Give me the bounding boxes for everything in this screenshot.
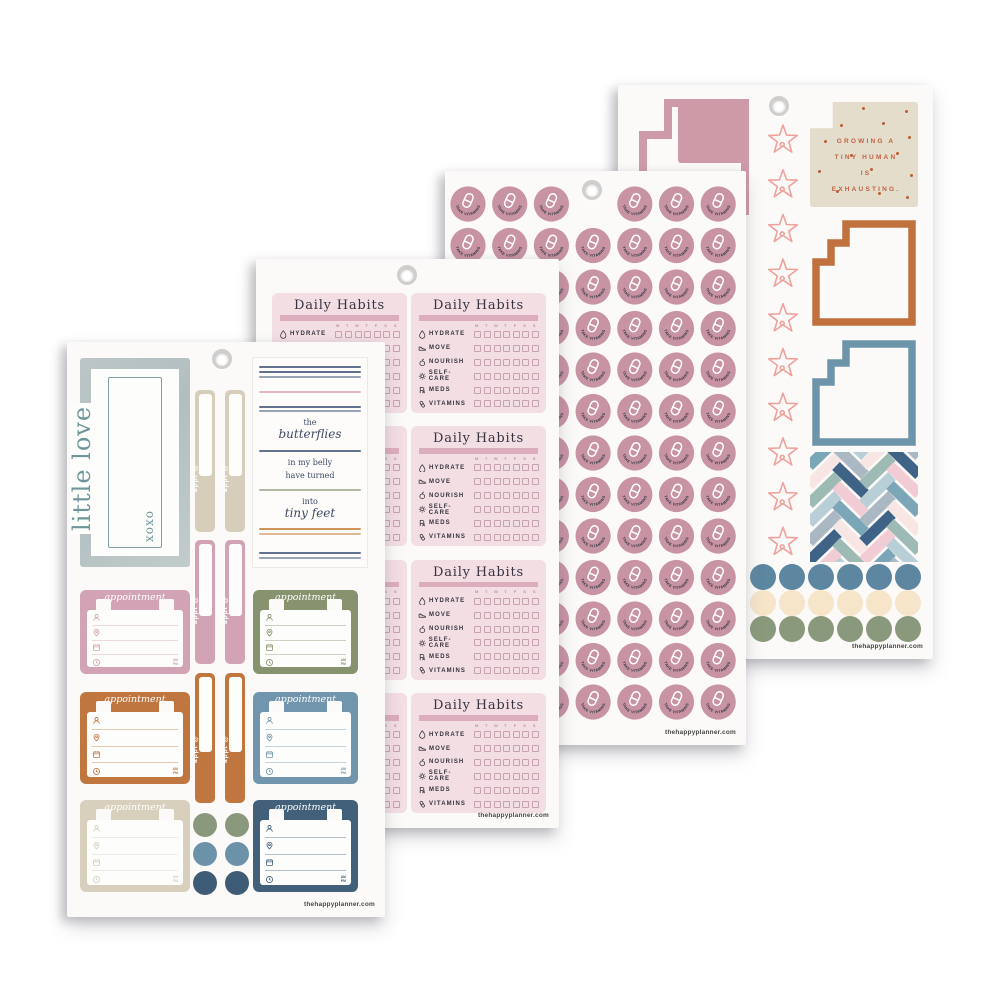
tab-label: appt @ bbox=[223, 590, 231, 624]
shoe-icon bbox=[418, 344, 429, 353]
habit-checkbox bbox=[494, 639, 501, 646]
habit-checkbox bbox=[532, 773, 539, 780]
habit-checkbox bbox=[474, 801, 481, 808]
clock-icon bbox=[265, 875, 274, 884]
habit-checkbox bbox=[474, 464, 481, 471]
rx-icon bbox=[418, 386, 429, 395]
appointment-row bbox=[92, 713, 178, 730]
clock-icon bbox=[265, 658, 274, 667]
habit-checkbox bbox=[494, 787, 501, 794]
habit-checkbox bbox=[532, 345, 539, 352]
habit-checkbox bbox=[522, 731, 529, 738]
sticker-sheet-little-love: little love xoxo appt @appt @appt @appt … bbox=[67, 342, 385, 917]
vitamin-circle-sticker bbox=[576, 352, 611, 387]
vitamin-circle-sticker bbox=[701, 643, 736, 678]
dot-sticker bbox=[779, 616, 805, 642]
habit-row: HYDRATE bbox=[418, 594, 539, 608]
habit-checkbox bbox=[532, 492, 539, 499]
habit-checkbox bbox=[513, 534, 520, 541]
day-letter: F bbox=[510, 323, 520, 328]
pill-icon bbox=[418, 666, 429, 675]
habit-checkbox bbox=[532, 387, 539, 394]
habit-checkbox bbox=[393, 359, 400, 366]
habit-checkbox bbox=[532, 639, 539, 646]
habit-row: NOURISH bbox=[418, 622, 539, 636]
star-sticker bbox=[769, 438, 798, 465]
vitamin-circle-sticker bbox=[659, 228, 694, 263]
vitamin-circle-sticker bbox=[659, 518, 694, 553]
habit-checkbox bbox=[494, 801, 501, 808]
appointment-row: AMPM bbox=[265, 655, 346, 670]
dot-sticker bbox=[193, 813, 217, 837]
habit-checkbox bbox=[522, 506, 529, 513]
title-underline-bar bbox=[419, 315, 538, 321]
habit-checkbox bbox=[393, 653, 400, 660]
am-pm-label: AMPM bbox=[173, 658, 178, 667]
habit-checkbox bbox=[513, 345, 520, 352]
habit-checkbox bbox=[503, 639, 510, 646]
day-letter: F bbox=[510, 589, 520, 594]
vitamin-circle-sticker bbox=[576, 560, 611, 595]
vitamin-circle-sticker bbox=[659, 601, 694, 636]
habit-checkbox bbox=[503, 400, 510, 407]
habit-checkbox bbox=[484, 506, 491, 513]
day-letter: S bbox=[390, 323, 400, 328]
sun-icon bbox=[418, 505, 429, 514]
appointment-row: AMPM bbox=[92, 763, 178, 780]
tab-label: appt @ bbox=[193, 729, 201, 763]
habit-checkbox bbox=[532, 478, 539, 485]
vitamin-circle-sticker bbox=[701, 186, 736, 221]
habit-checkbox bbox=[393, 773, 400, 780]
dot-sticker bbox=[895, 590, 921, 616]
habit-row: VITAMINS bbox=[418, 530, 539, 544]
habit-checkbox bbox=[522, 534, 529, 541]
day-letter: M bbox=[472, 456, 482, 461]
habit-checkbox bbox=[484, 667, 491, 674]
day-letter: T bbox=[342, 323, 352, 328]
dot-sticker bbox=[837, 564, 863, 590]
habit-checkbox bbox=[522, 520, 529, 527]
quote-word: have turned bbox=[253, 471, 367, 480]
habit-checkbox bbox=[494, 387, 501, 394]
checkbox-strip bbox=[472, 745, 539, 752]
habit-row: MOVE bbox=[418, 742, 539, 756]
clock-icon bbox=[92, 658, 101, 667]
clock-icon bbox=[265, 767, 274, 776]
checkbox-strip bbox=[472, 801, 539, 808]
habit-checkbox bbox=[494, 345, 501, 352]
day-letter: W bbox=[491, 589, 501, 594]
habit-checkbox bbox=[503, 506, 510, 513]
habit-checkbox bbox=[474, 626, 481, 633]
appointment-row bbox=[265, 611, 346, 626]
dot-sticker bbox=[866, 616, 892, 642]
habit-checkbox bbox=[474, 387, 481, 394]
polka-dot bbox=[840, 124, 843, 127]
shoe-icon bbox=[418, 744, 429, 753]
habit-checkbox bbox=[474, 373, 481, 380]
brand-url: thehappyplanner.com bbox=[665, 729, 736, 736]
habit-row: SELF-CARE bbox=[418, 503, 539, 517]
checkbox-strip bbox=[472, 492, 539, 499]
appointment-row bbox=[265, 838, 346, 855]
habit-checkbox bbox=[494, 612, 501, 619]
habit-checkbox bbox=[494, 331, 501, 338]
checkbox-strip bbox=[472, 506, 539, 513]
checkbox-strip bbox=[472, 653, 539, 660]
dot-sticker bbox=[808, 616, 834, 642]
habit-checkbox bbox=[513, 653, 520, 660]
habit-checkbox bbox=[513, 759, 520, 766]
location-pin-icon bbox=[265, 733, 274, 742]
appointment-row bbox=[265, 626, 346, 641]
day-letter: T bbox=[481, 323, 491, 328]
star-sticker bbox=[769, 349, 798, 376]
checkbox-strip bbox=[472, 787, 539, 794]
habit-checkbox bbox=[522, 400, 529, 407]
day-letter: F bbox=[371, 323, 381, 328]
dot-sticker bbox=[225, 842, 249, 866]
vitamin-circle-sticker bbox=[576, 684, 611, 719]
person-icon bbox=[92, 824, 101, 833]
am-pm-label: AMPM bbox=[173, 767, 178, 776]
habit-checkbox bbox=[532, 759, 539, 766]
habit-checkbox bbox=[513, 639, 520, 646]
habit-checkbox bbox=[494, 520, 501, 527]
habit-row: HYDRATE bbox=[418, 328, 539, 342]
habit-checkbox bbox=[513, 801, 520, 808]
vitamin-circle-sticker bbox=[492, 186, 527, 221]
habit-checkbox bbox=[484, 331, 491, 338]
polka-dot bbox=[862, 107, 865, 110]
habit-box-title: Daily Habits bbox=[418, 565, 539, 581]
habit-checkbox bbox=[474, 359, 481, 366]
habit-checkbox bbox=[532, 667, 539, 674]
habit-checkbox bbox=[494, 400, 501, 407]
habit-checkbox bbox=[503, 612, 510, 619]
appointment-row bbox=[265, 747, 346, 764]
vitamin-circle-sticker bbox=[617, 560, 652, 595]
habit-checkbox bbox=[494, 492, 501, 499]
sun-icon bbox=[418, 372, 429, 381]
vitamin-circle-sticker bbox=[701, 684, 736, 719]
habit-checkbox bbox=[503, 331, 510, 338]
tab-label: appt @ bbox=[193, 590, 201, 624]
habit-label: NOURISH bbox=[429, 759, 464, 765]
day-letter: T bbox=[481, 589, 491, 594]
appointment-row bbox=[92, 855, 178, 872]
checkbox-strip bbox=[472, 626, 539, 633]
habit-checkbox bbox=[474, 478, 481, 485]
habit-tracker-box: Daily Habits MTWTFSS HYDRATE MOVE NOURIS… bbox=[411, 693, 546, 813]
habit-checkbox bbox=[494, 745, 501, 752]
habit-checkbox bbox=[474, 787, 481, 794]
habit-checkbox bbox=[494, 626, 501, 633]
star-sticker bbox=[769, 393, 798, 420]
appointment-row bbox=[92, 626, 178, 641]
habit-checkbox bbox=[484, 373, 491, 380]
pill-icon bbox=[418, 800, 429, 809]
sun-icon bbox=[418, 772, 429, 781]
vitamin-circle-sticker bbox=[576, 518, 611, 553]
habit-tracker-box: Daily Habits MTWTFSS HYDRATE MOVE NOURIS… bbox=[411, 293, 546, 413]
habit-box-title: Daily Habits bbox=[418, 431, 539, 447]
quote-word: butterflies bbox=[253, 427, 367, 441]
habit-checkbox bbox=[393, 345, 400, 352]
vitamin-circle-sticker bbox=[617, 311, 652, 346]
rx-icon bbox=[418, 519, 429, 528]
appointment-row bbox=[92, 747, 178, 764]
habit-checkbox bbox=[503, 653, 510, 660]
appt-tab-sticker: appt @ bbox=[225, 673, 245, 803]
am-pm-label: AMPM bbox=[341, 658, 346, 667]
habit-checkbox bbox=[393, 534, 400, 541]
punch-hole bbox=[582, 180, 602, 200]
habit-checkbox bbox=[503, 787, 510, 794]
habit-checkbox bbox=[522, 478, 529, 485]
habit-checkbox bbox=[513, 464, 520, 471]
habit-checkbox bbox=[503, 745, 510, 752]
person-icon bbox=[265, 824, 274, 833]
vitamin-circle-sticker bbox=[701, 601, 736, 636]
habit-checkbox bbox=[474, 639, 481, 646]
habit-checkbox bbox=[503, 373, 510, 380]
habit-checkbox bbox=[393, 639, 400, 646]
quote-word: into bbox=[253, 497, 367, 506]
appointment-sticker: appointment AMPM bbox=[253, 800, 358, 892]
habit-checkbox bbox=[513, 506, 520, 513]
star-sticker bbox=[769, 527, 798, 554]
vitamin-circle-sticker bbox=[617, 394, 652, 429]
habit-checkbox bbox=[494, 373, 501, 380]
habit-label: NOURISH bbox=[429, 626, 464, 632]
habit-checkbox bbox=[474, 534, 481, 541]
day-letter: T bbox=[501, 456, 511, 461]
habit-box-title: Daily Habits bbox=[279, 298, 400, 314]
appointment-sticker: appointment AMPM bbox=[253, 692, 358, 784]
quote-word: in my belly bbox=[253, 458, 367, 467]
day-letter: S bbox=[520, 323, 530, 328]
habit-row: MOVE bbox=[418, 475, 539, 489]
habit-checkbox bbox=[355, 331, 362, 338]
day-letter: W bbox=[491, 723, 501, 728]
title-underline-bar bbox=[419, 715, 538, 721]
habit-checkbox bbox=[532, 373, 539, 380]
vitamin-circle-sticker bbox=[659, 560, 694, 595]
habit-label: SELF-CARE bbox=[429, 370, 472, 382]
star-sticker bbox=[769, 483, 798, 510]
appointment-row bbox=[92, 838, 178, 855]
tab-label: appt @ bbox=[223, 729, 231, 763]
habit-label: HYDRATE bbox=[429, 331, 465, 337]
habit-label: SELF-CARE bbox=[429, 504, 472, 516]
appointment-row: AMPM bbox=[265, 763, 346, 780]
checkbox-strip bbox=[472, 639, 539, 646]
habit-row: MEDS bbox=[418, 516, 539, 530]
dot-sticker bbox=[779, 564, 805, 590]
habit-checkbox bbox=[484, 639, 491, 646]
habit-label: MEDS bbox=[429, 787, 451, 793]
appt-tab-sticker: appt @ bbox=[225, 540, 245, 664]
appointment-row bbox=[265, 730, 346, 747]
vitamin-circle-sticker bbox=[701, 311, 736, 346]
checkbox-strip bbox=[472, 667, 539, 674]
habit-label: HYDRATE bbox=[290, 331, 326, 337]
habit-label: NOURISH bbox=[429, 359, 464, 365]
dot-sticker bbox=[866, 590, 892, 616]
habit-checkbox bbox=[522, 759, 529, 766]
day-letter: M bbox=[333, 323, 343, 328]
dot-sticker bbox=[808, 590, 834, 616]
day-letter: S bbox=[529, 456, 539, 461]
habit-checkbox bbox=[474, 667, 481, 674]
checkbox-strip bbox=[472, 534, 539, 541]
habit-tracker-box: Daily Habits MTWTFSS HYDRATE MOVE NOURIS… bbox=[411, 560, 546, 680]
checkbox-strip bbox=[472, 759, 539, 766]
day-letter: T bbox=[501, 589, 511, 594]
quote-text: GROWING A TINY HUMAN IS EXHAUSTING. bbox=[816, 134, 916, 198]
habit-label: MEDS bbox=[429, 520, 451, 526]
xoxo-text: xoxo bbox=[143, 508, 155, 544]
habit-checkbox bbox=[494, 359, 501, 366]
habit-checkbox bbox=[474, 598, 481, 605]
habit-checkbox bbox=[503, 626, 510, 633]
day-letter: M bbox=[472, 323, 482, 328]
day-letter: S bbox=[529, 323, 539, 328]
habit-checkbox bbox=[532, 506, 539, 513]
habit-checkbox bbox=[522, 612, 529, 619]
vitamin-circle-sticker bbox=[701, 352, 736, 387]
habit-checkbox bbox=[484, 801, 491, 808]
habit-label: VITAMINS bbox=[429, 534, 466, 540]
am-pm-label: AMPM bbox=[341, 767, 346, 776]
habit-checkbox bbox=[532, 331, 539, 338]
habit-checkbox bbox=[513, 331, 520, 338]
habit-checkbox bbox=[532, 787, 539, 794]
habit-checkbox bbox=[522, 492, 529, 499]
habit-checkbox bbox=[393, 759, 400, 766]
habit-label: HYDRATE bbox=[429, 732, 465, 738]
punch-hole bbox=[397, 265, 417, 285]
habit-checkbox bbox=[494, 773, 501, 780]
habit-checkbox bbox=[532, 801, 539, 808]
habit-row: MOVE bbox=[418, 608, 539, 622]
star-sticker bbox=[769, 304, 798, 331]
tab-label: appt @ bbox=[193, 458, 201, 492]
person-icon bbox=[92, 613, 101, 622]
checkbox-strip bbox=[472, 464, 539, 471]
am-pm-label: AMPM bbox=[341, 875, 346, 884]
habit-checkbox bbox=[484, 731, 491, 738]
vitamin-circle-sticker bbox=[576, 269, 611, 304]
habit-checkbox bbox=[393, 598, 400, 605]
title-underline-bar bbox=[419, 582, 538, 588]
dot-sticker bbox=[193, 842, 217, 866]
habit-checkbox bbox=[513, 359, 520, 366]
habit-checkbox bbox=[522, 773, 529, 780]
little-love-frame-sticker: little love xoxo bbox=[80, 358, 190, 567]
habit-checkbox bbox=[522, 345, 529, 352]
habit-checkbox bbox=[503, 731, 510, 738]
rx-icon bbox=[418, 653, 429, 662]
dot-sticker bbox=[808, 564, 834, 590]
habit-checkbox bbox=[532, 626, 539, 633]
title-underline-bar bbox=[280, 315, 399, 321]
appointment-row bbox=[265, 855, 346, 872]
habit-row: MOVE bbox=[418, 341, 539, 355]
habit-checkbox bbox=[522, 387, 529, 394]
appt-tab-sticker: appt @ bbox=[195, 540, 215, 664]
vitamin-circle-sticker bbox=[492, 228, 527, 263]
day-letter: M bbox=[472, 723, 482, 728]
punch-hole bbox=[212, 349, 232, 369]
habit-checkbox bbox=[532, 534, 539, 541]
pill-icon bbox=[418, 400, 429, 409]
calendar-icon bbox=[265, 643, 274, 652]
dot-sticker bbox=[837, 616, 863, 642]
checkbox-strip bbox=[472, 478, 539, 485]
appointment-row bbox=[265, 821, 346, 838]
habit-checkbox bbox=[503, 598, 510, 605]
appointment-row bbox=[92, 730, 178, 747]
day-letters-row: MTWTFSS bbox=[418, 456, 539, 461]
habit-checkbox bbox=[484, 520, 491, 527]
polka-dot bbox=[882, 122, 885, 125]
day-letter: W bbox=[491, 456, 501, 461]
habit-row: MEDS bbox=[418, 650, 539, 664]
habit-checkbox bbox=[503, 773, 510, 780]
dot-sticker bbox=[225, 871, 249, 895]
appointment-body: AMPM bbox=[260, 712, 351, 777]
vitamin-circle-sticker bbox=[617, 684, 652, 719]
habit-checkbox bbox=[393, 520, 400, 527]
vitamin-circle-sticker bbox=[701, 477, 736, 512]
sun-icon bbox=[418, 639, 429, 648]
habit-checkbox bbox=[513, 520, 520, 527]
habit-checkbox bbox=[513, 373, 520, 380]
checkbox-strip bbox=[472, 773, 539, 780]
habit-label: VITAMINS bbox=[429, 401, 466, 407]
habit-checkbox bbox=[494, 506, 501, 513]
habit-checkbox bbox=[484, 345, 491, 352]
appointment-sticker: appointment AMPM bbox=[253, 590, 358, 674]
habit-checkbox bbox=[513, 787, 520, 794]
day-letter: T bbox=[481, 456, 491, 461]
habit-checkbox bbox=[503, 478, 510, 485]
vitamin-circle-sticker bbox=[576, 601, 611, 636]
dot-sticker bbox=[837, 590, 863, 616]
habit-checkbox bbox=[532, 598, 539, 605]
habit-checkbox bbox=[474, 345, 481, 352]
habit-checkbox bbox=[522, 667, 529, 674]
checkbox-strip bbox=[472, 520, 539, 527]
day-letter: S bbox=[520, 589, 530, 594]
appointment-body: AMPM bbox=[260, 820, 351, 885]
water-drop-icon bbox=[279, 330, 290, 339]
habit-checkbox bbox=[494, 653, 501, 660]
checkbox-strip bbox=[472, 345, 539, 352]
vitamin-circle-sticker bbox=[617, 186, 652, 221]
habit-checkbox bbox=[494, 731, 501, 738]
habit-row: NOURISH bbox=[418, 355, 539, 369]
habit-checkbox bbox=[513, 598, 520, 605]
star-sticker bbox=[769, 214, 798, 241]
day-letter: W bbox=[491, 323, 501, 328]
polka-dot bbox=[905, 110, 908, 113]
vitamin-circle-sticker bbox=[576, 477, 611, 512]
brand-url: thehappyplanner.com bbox=[304, 901, 375, 908]
